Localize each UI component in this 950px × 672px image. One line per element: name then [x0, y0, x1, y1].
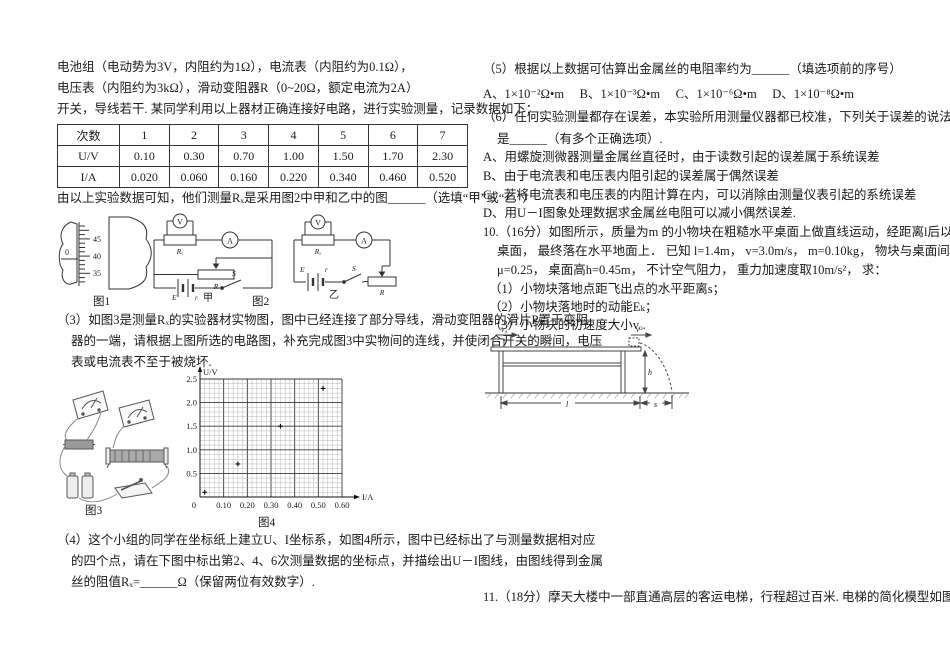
table-leg-left	[499, 351, 503, 393]
q6-line-2: 是______（有多个正确选项）.	[497, 131, 663, 147]
resistor-rx-symbol	[302, 235, 334, 245]
y-axis-arrow	[198, 366, 202, 372]
table-cell: 0.70	[219, 146, 269, 167]
table-cell: I/A	[58, 167, 120, 188]
table-cell: 2	[169, 125, 219, 146]
fig4-caption: 图4	[258, 514, 275, 530]
emf-label: E	[299, 265, 305, 274]
battery-symbol	[308, 273, 323, 291]
ammeter-label: A	[227, 237, 233, 246]
h-label: h	[648, 368, 652, 377]
x-axis-label: I/A	[362, 492, 374, 502]
emf-label: E	[171, 293, 177, 302]
rheostat-label: R	[379, 288, 385, 297]
table-data-row: U/V0.100.300.701.001.501.702.30	[58, 146, 468, 167]
battery-cells	[67, 473, 93, 498]
switch-label: S	[352, 264, 356, 273]
q5-question: （5）根据以上数据可估算出金属丝的电阻率约为______（填选项前的序号）	[483, 61, 902, 77]
equipment-spec-line-1: 电池组（电动势为3V，内阻约为1Ω），电流表（内阻约为0.1Ω），	[57, 59, 413, 75]
switch-label: S	[232, 269, 236, 278]
table-cell: 0.30	[169, 146, 219, 167]
table-cell: 1.00	[269, 146, 319, 167]
thimble-tick-40: 40	[93, 252, 101, 261]
circuit-jia-diagram: V A Rₓ R E r S 甲	[146, 210, 280, 302]
rheostat-symbol	[198, 270, 234, 279]
table-cell: 2.30	[418, 146, 468, 167]
table-leg-right	[621, 351, 625, 393]
table-cell: 0.060	[169, 167, 219, 188]
fig2-caption: 图2	[252, 293, 269, 309]
x-tick-label: 0.50	[311, 500, 326, 510]
ammeter-label: A	[361, 237, 367, 246]
q5-options: A、1×10⁻²Ω•m B、1×10⁻³Ω•m C、1×10⁻⁶Ω•m D、1×…	[483, 86, 854, 102]
table-cell: 1	[120, 125, 170, 146]
y-tick-label: 2.5	[186, 374, 197, 384]
meter-1	[73, 391, 108, 419]
q10-sub-2: （2）小物块落地时的动能Eₖ；	[489, 299, 657, 315]
q10-line-3: μ=0.25， 桌面高h=0.45m， 不计空气阻力， 重力加速度取10m/s²…	[497, 262, 887, 278]
q6-option-b: B、由于电流表和电压表内阻引起的误差属于偶然误差	[483, 168, 779, 184]
x-tick-label: 0.10	[216, 500, 231, 510]
s-label: s	[654, 400, 657, 409]
switch	[115, 479, 152, 499]
q6-option-a: A、用螺旋测微器测量金属丝直径时，由于读数引起的误差属于系统误差	[483, 149, 880, 165]
x-tick-label: 0.30	[264, 500, 279, 510]
table-cell: 1.50	[318, 146, 368, 167]
circuit-yi-diagram: V A Rₓ R E r S 乙	[286, 212, 398, 300]
micrometer-barrel	[109, 217, 151, 289]
circuit-choice-question: 由以上实验数据可知，他们测量Rₓ是采用图2中甲和乙中的图______（选填“甲”…	[57, 190, 535, 206]
table-cell: 1.70	[368, 146, 418, 167]
table-cell: 0.020	[120, 167, 170, 188]
table-cell: 0.340	[318, 167, 368, 188]
y-tick-label: 1.0	[186, 445, 197, 455]
table-cell: U/V	[58, 146, 120, 167]
rheostat-label: R	[213, 282, 219, 291]
q6-line-1: （6）任何实验测量都存在误差，本实验所用测量仪器都已校准，下列关于误差的说法中正…	[483, 109, 950, 125]
table-cell: 0.520	[418, 167, 468, 188]
equipment-spec-line-3: 开关，导线若干. 某同学利用以上器材正确连接好电路，进行实验测量，记录数据如下：	[57, 101, 538, 117]
x-axis-arrow	[354, 495, 360, 499]
x-tick-label: 0.20	[240, 500, 255, 510]
thimble-tick-35: 35	[93, 269, 101, 278]
block-at-start	[493, 339, 504, 347]
rx-label: Rₓ	[314, 247, 322, 256]
sleeve-zero-label: 0	[65, 248, 69, 257]
internal-r-label: r	[325, 266, 328, 274]
table-cell: 5	[318, 125, 368, 146]
rx-label: Rₓ	[176, 247, 184, 256]
q6-option-c: C、若将电流表和电压表的内阻计算在内，可以消除由测量仪表引起的系统误差	[483, 187, 916, 203]
table-cell: 3	[219, 125, 269, 146]
table-cell: 7	[418, 125, 468, 146]
table-cell: 0.220	[269, 167, 319, 188]
meter-2	[119, 400, 154, 427]
fig3-caption: 图3	[85, 502, 102, 518]
table-data-row: I/A0.0200.0600.1600.2200.3400.4600.520	[58, 167, 468, 188]
q11-question: 11.（18分）摩天大楼中一部直通高层的客运电梯，行程超过百米. 电梯的简化模型…	[483, 589, 950, 605]
fig4-ui-graph: U/VI/A00.51.01.52.02.50.100.200.300.400.…	[173, 366, 385, 516]
v-label: v	[636, 325, 640, 334]
q4-line-1: （4）这个小组的同学在坐标纸上建立U、I坐标系，如图4所示，图中已经标出了与测量…	[57, 532, 595, 548]
x-tick-label: 0.40	[287, 500, 302, 510]
q4-line-3: 丝的阻值Rₓ=______Ω（保留两位有效数字）.	[71, 574, 315, 590]
table-cell: 6	[368, 125, 418, 146]
thimble-tick-45: 45	[93, 235, 101, 244]
q10-line-2: 桌面， 最终落在水平地面上． 已知 l=1.4m， v=3.0m/s， m=0.…	[497, 243, 950, 259]
table-cell: 0.10	[120, 146, 170, 167]
table-cell: 0.160	[219, 167, 269, 188]
rheostat	[106, 448, 168, 468]
table-top	[491, 347, 641, 351]
circuit-yi-label: 乙	[329, 289, 339, 300]
table-cell: 0.460	[368, 167, 418, 188]
y-tick-label: 1.5	[186, 421, 197, 431]
switch-symbol	[343, 274, 364, 283]
q10-sub-1: （1）小物块落地点距飞出点的水平距离s；	[489, 281, 725, 297]
block-at-edge	[629, 338, 639, 346]
q10-line-1: 10.（16分）如图所示，质量为m 的小物块在粗糙水平桌面上做直线运动，经距离l…	[483, 224, 950, 240]
ground-hatching	[487, 393, 689, 398]
circuit-jia-label: 甲	[203, 293, 213, 302]
table-header-row: 次数1234567	[58, 125, 468, 146]
resistor-rx-symbol	[164, 235, 196, 245]
q10-table-projectile-figure: v₀ v h l s	[483, 323, 693, 413]
q4-line-2: 的四个点，请在下图中标出第2、4、6次测量数据的坐标点，并描绘出U－I图线，由图…	[71, 553, 603, 569]
rheostat-slider-arrow	[380, 272, 385, 276]
v0-label: v₀	[501, 325, 508, 334]
measurement-data-table: 次数1234567U/V0.100.300.701.001.501.702.30…	[57, 124, 468, 188]
battery-symbol	[178, 279, 193, 297]
voltmeter-label: V	[315, 219, 321, 228]
resistor	[63, 440, 95, 449]
y-tick-label: 2.0	[186, 398, 197, 408]
x-tick-label: 0.60	[335, 500, 350, 510]
rheostat-symbol	[368, 277, 396, 286]
table-cell: 次数	[58, 125, 120, 146]
internal-r-label: r	[195, 294, 198, 302]
equipment-spec-line-2: 电压表（内阻约为3kΩ），滑动变阻器R（0~20Ω，额定电流为2A）	[57, 80, 418, 96]
q6-option-d: D、用U－I图象处理数据求金属丝电阻可以减小偶然误差.	[483, 205, 796, 221]
origin-tick-label: 0	[192, 500, 196, 510]
table-shelf	[503, 363, 621, 366]
switch-symbol	[221, 280, 272, 289]
rheostat-slider-arrow	[214, 264, 219, 268]
fig3-apparatus-illustration	[57, 388, 179, 502]
y-tick-label: 0.5	[186, 468, 197, 478]
exam-page: 电池组（电动势为3V，内阻约为1Ω），电流表（内阻约为0.1Ω）， 电压表（内阻…	[0, 0, 950, 672]
l-label: l	[566, 400, 569, 409]
y-axis-label: U/V	[203, 367, 219, 377]
fig1-caption: 图1	[93, 293, 110, 309]
voltmeter-label: V	[177, 218, 183, 227]
table-cell: 4	[269, 125, 319, 146]
